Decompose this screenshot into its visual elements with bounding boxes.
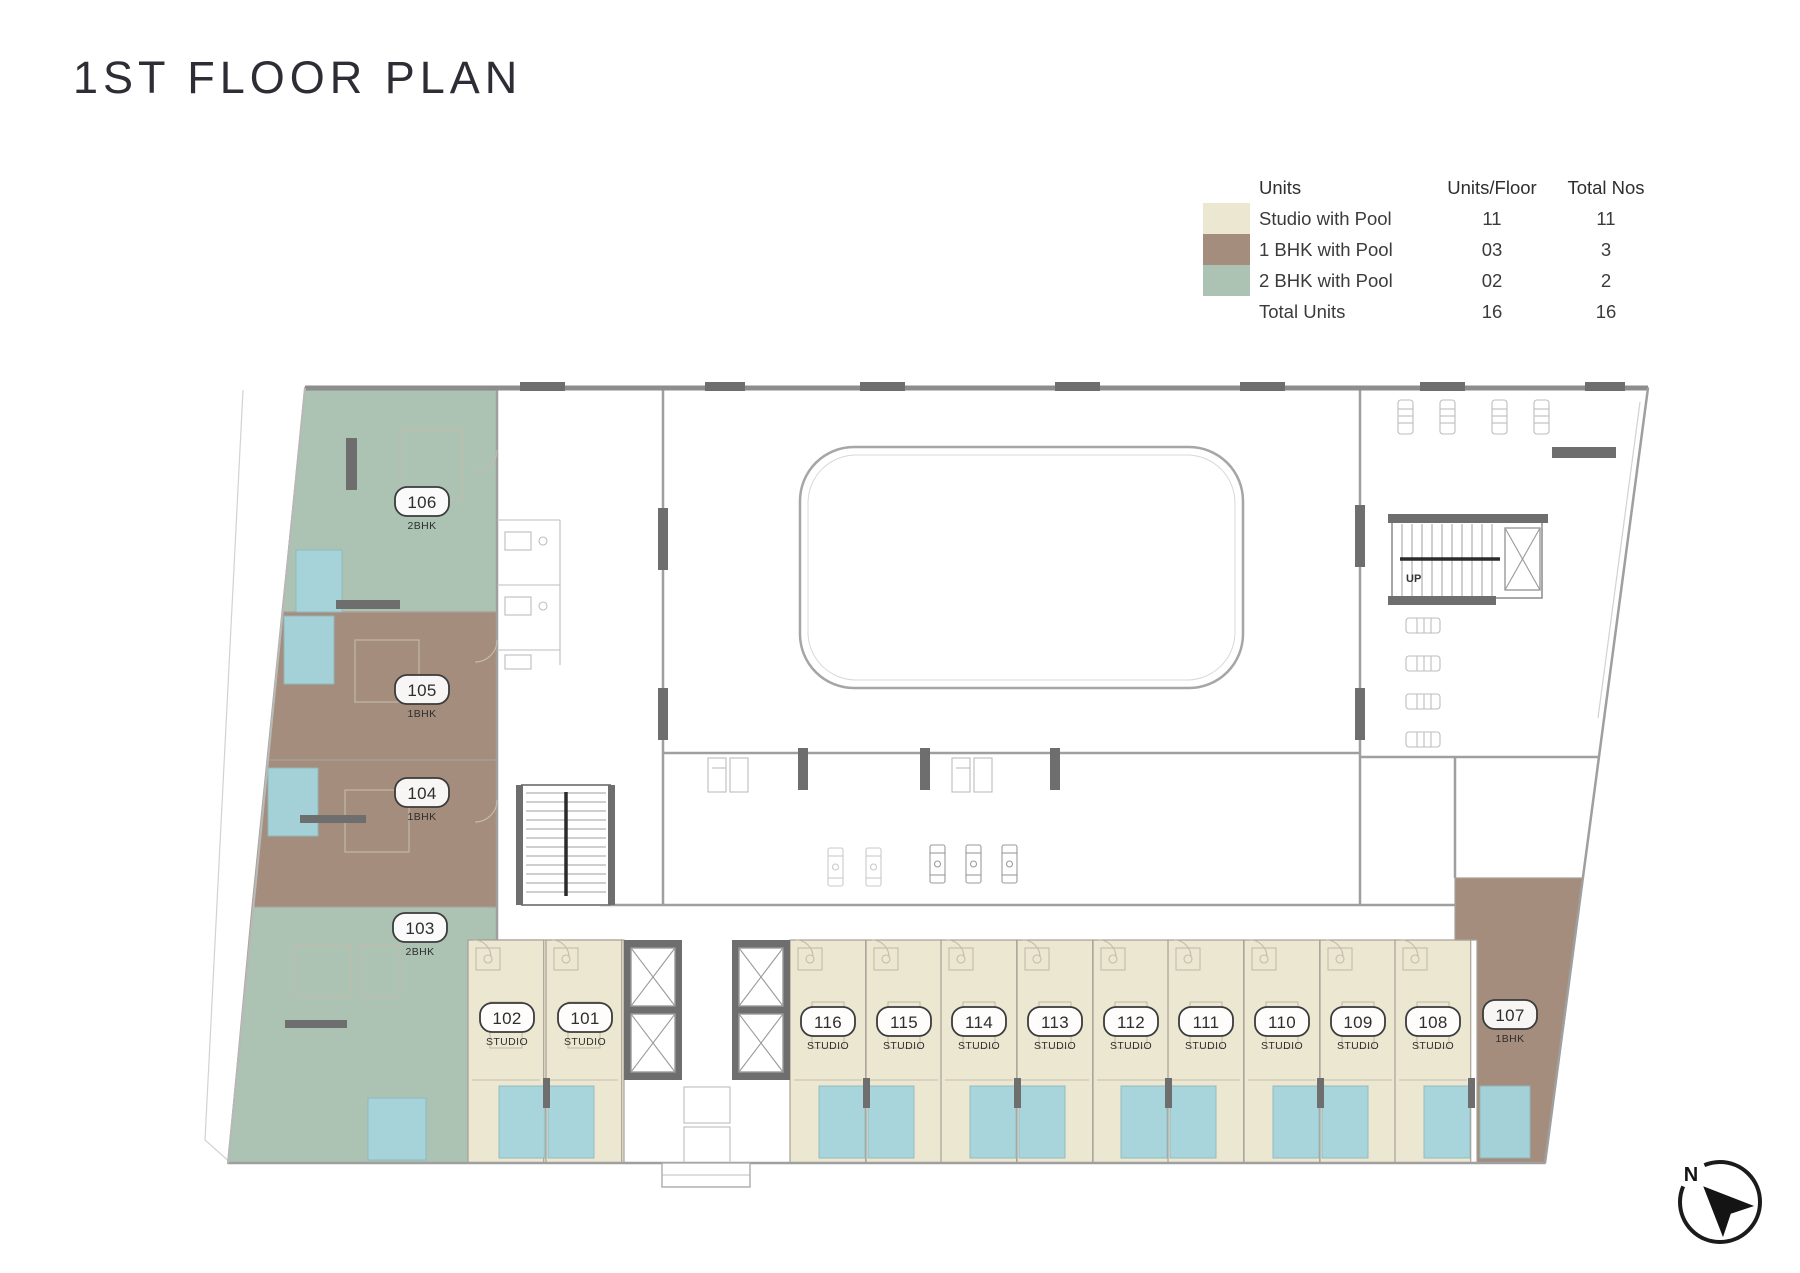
svg-text:108: 108 (1418, 1013, 1447, 1032)
svg-text:114: 114 (965, 1013, 993, 1032)
unit-badge-113: 113 STUDIO (1028, 1007, 1082, 1052)
svg-text:STUDIO: STUDIO (1034, 1040, 1076, 1052)
pool-111 (1170, 1086, 1216, 1158)
svg-text:STUDIO: STUDIO (1185, 1040, 1227, 1052)
pool-108 (1424, 1086, 1470, 1158)
elevator-core-right (732, 940, 790, 1080)
svg-text:STUDIO: STUDIO (883, 1040, 925, 1052)
staircase-up: UP (1388, 514, 1548, 605)
svg-text:111: 111 (1193, 1013, 1220, 1032)
pool-103 (368, 1098, 426, 1160)
pool-107 (1480, 1086, 1530, 1158)
unit-badge-101: 101 STUDIO (558, 1003, 612, 1048)
svg-text:106: 106 (407, 493, 436, 512)
svg-text:STUDIO: STUDIO (1412, 1040, 1454, 1052)
svg-text:2BHK: 2BHK (407, 520, 436, 532)
unit-badge-114: 114 STUDIO (952, 1007, 1006, 1052)
svg-text:2BHK: 2BHK (405, 946, 434, 958)
svg-text:1BHK: 1BHK (1495, 1033, 1524, 1045)
north-label: N (1684, 1164, 1698, 1186)
svg-text:102: 102 (492, 1009, 521, 1028)
pool-113 (1019, 1086, 1065, 1158)
svg-text:1BHK: 1BHK (407, 708, 436, 720)
unit-badge-102: 102 STUDIO (480, 1003, 534, 1048)
svg-text:116: 116 (814, 1013, 842, 1032)
pool-114 (970, 1086, 1016, 1158)
pool-112 (1121, 1086, 1167, 1158)
pool-116 (819, 1086, 865, 1158)
svg-text:103: 103 (405, 919, 434, 938)
pool-115 (868, 1086, 914, 1158)
pool-110 (1273, 1086, 1319, 1158)
svg-text:109: 109 (1343, 1013, 1372, 1032)
svg-text:STUDIO: STUDIO (1110, 1040, 1152, 1052)
svg-text:STUDIO: STUDIO (486, 1036, 528, 1048)
svg-text:STUDIO: STUDIO (958, 1040, 1000, 1052)
svg-text:STUDIO: STUDIO (1337, 1040, 1379, 1052)
up-label: UP (1406, 573, 1421, 585)
elevator-core-left (624, 940, 682, 1080)
site-boundary-line (205, 390, 243, 1164)
pool-109 (1322, 1086, 1368, 1158)
page: 1ST FLOOR PLAN Units Units/Floor Total N… (0, 0, 1800, 1273)
svg-text:STUDIO: STUDIO (564, 1036, 606, 1048)
unit-badge-112: 112 STUDIO (1104, 1007, 1158, 1052)
unit-badge-111: 111 STUDIO (1179, 1007, 1233, 1052)
courtyard-pool-deck (800, 447, 1243, 688)
unit-badge-115: 115 STUDIO (877, 1007, 931, 1052)
unit-badge-116: 116 STUDIO (801, 1007, 855, 1052)
compass-icon: N (1680, 1162, 1760, 1242)
pool-106 (296, 550, 342, 612)
svg-text:STUDIO: STUDIO (1261, 1040, 1303, 1052)
svg-text:1BHK: 1BHK (407, 811, 436, 823)
svg-text:107: 107 (1495, 1006, 1524, 1025)
unit-badge-108: 108 STUDIO (1406, 1007, 1460, 1052)
svg-text:110: 110 (1268, 1013, 1296, 1032)
svg-text:115: 115 (890, 1013, 918, 1032)
pool-101 (548, 1086, 594, 1158)
svg-text:112: 112 (1117, 1013, 1145, 1032)
floor-plan: UP (0, 0, 1800, 1273)
staircase-left (516, 785, 615, 905)
pool-102 (499, 1086, 545, 1158)
unit-badge-109: 109 STUDIO (1331, 1007, 1385, 1052)
svg-text:STUDIO: STUDIO (807, 1040, 849, 1052)
svg-text:113: 113 (1041, 1013, 1069, 1032)
unit-badge-110: 110 STUDIO (1255, 1007, 1309, 1052)
svg-text:104: 104 (407, 784, 436, 803)
elevator-cabin-right (1505, 528, 1540, 590)
pool-104 (268, 768, 318, 836)
svg-text:101: 101 (570, 1009, 599, 1028)
pool-105 (284, 616, 334, 684)
svg-text:105: 105 (407, 681, 436, 700)
